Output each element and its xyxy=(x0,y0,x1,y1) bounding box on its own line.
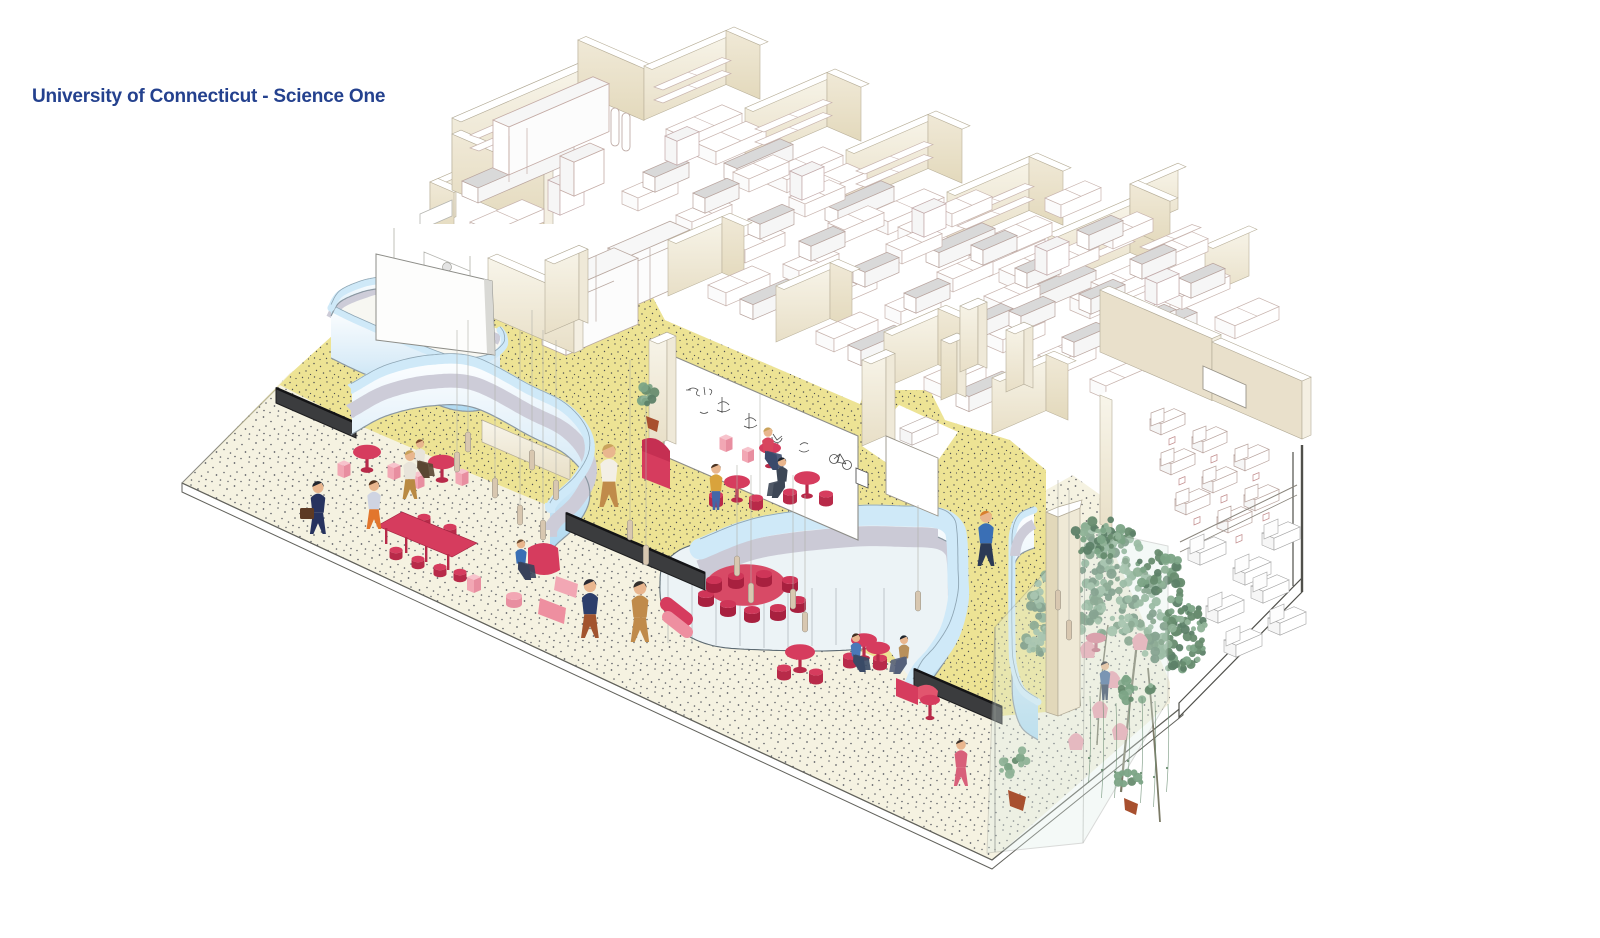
svg-text:University of Connecticut - Sc: University of Connecticut - Science One xyxy=(32,86,385,107)
